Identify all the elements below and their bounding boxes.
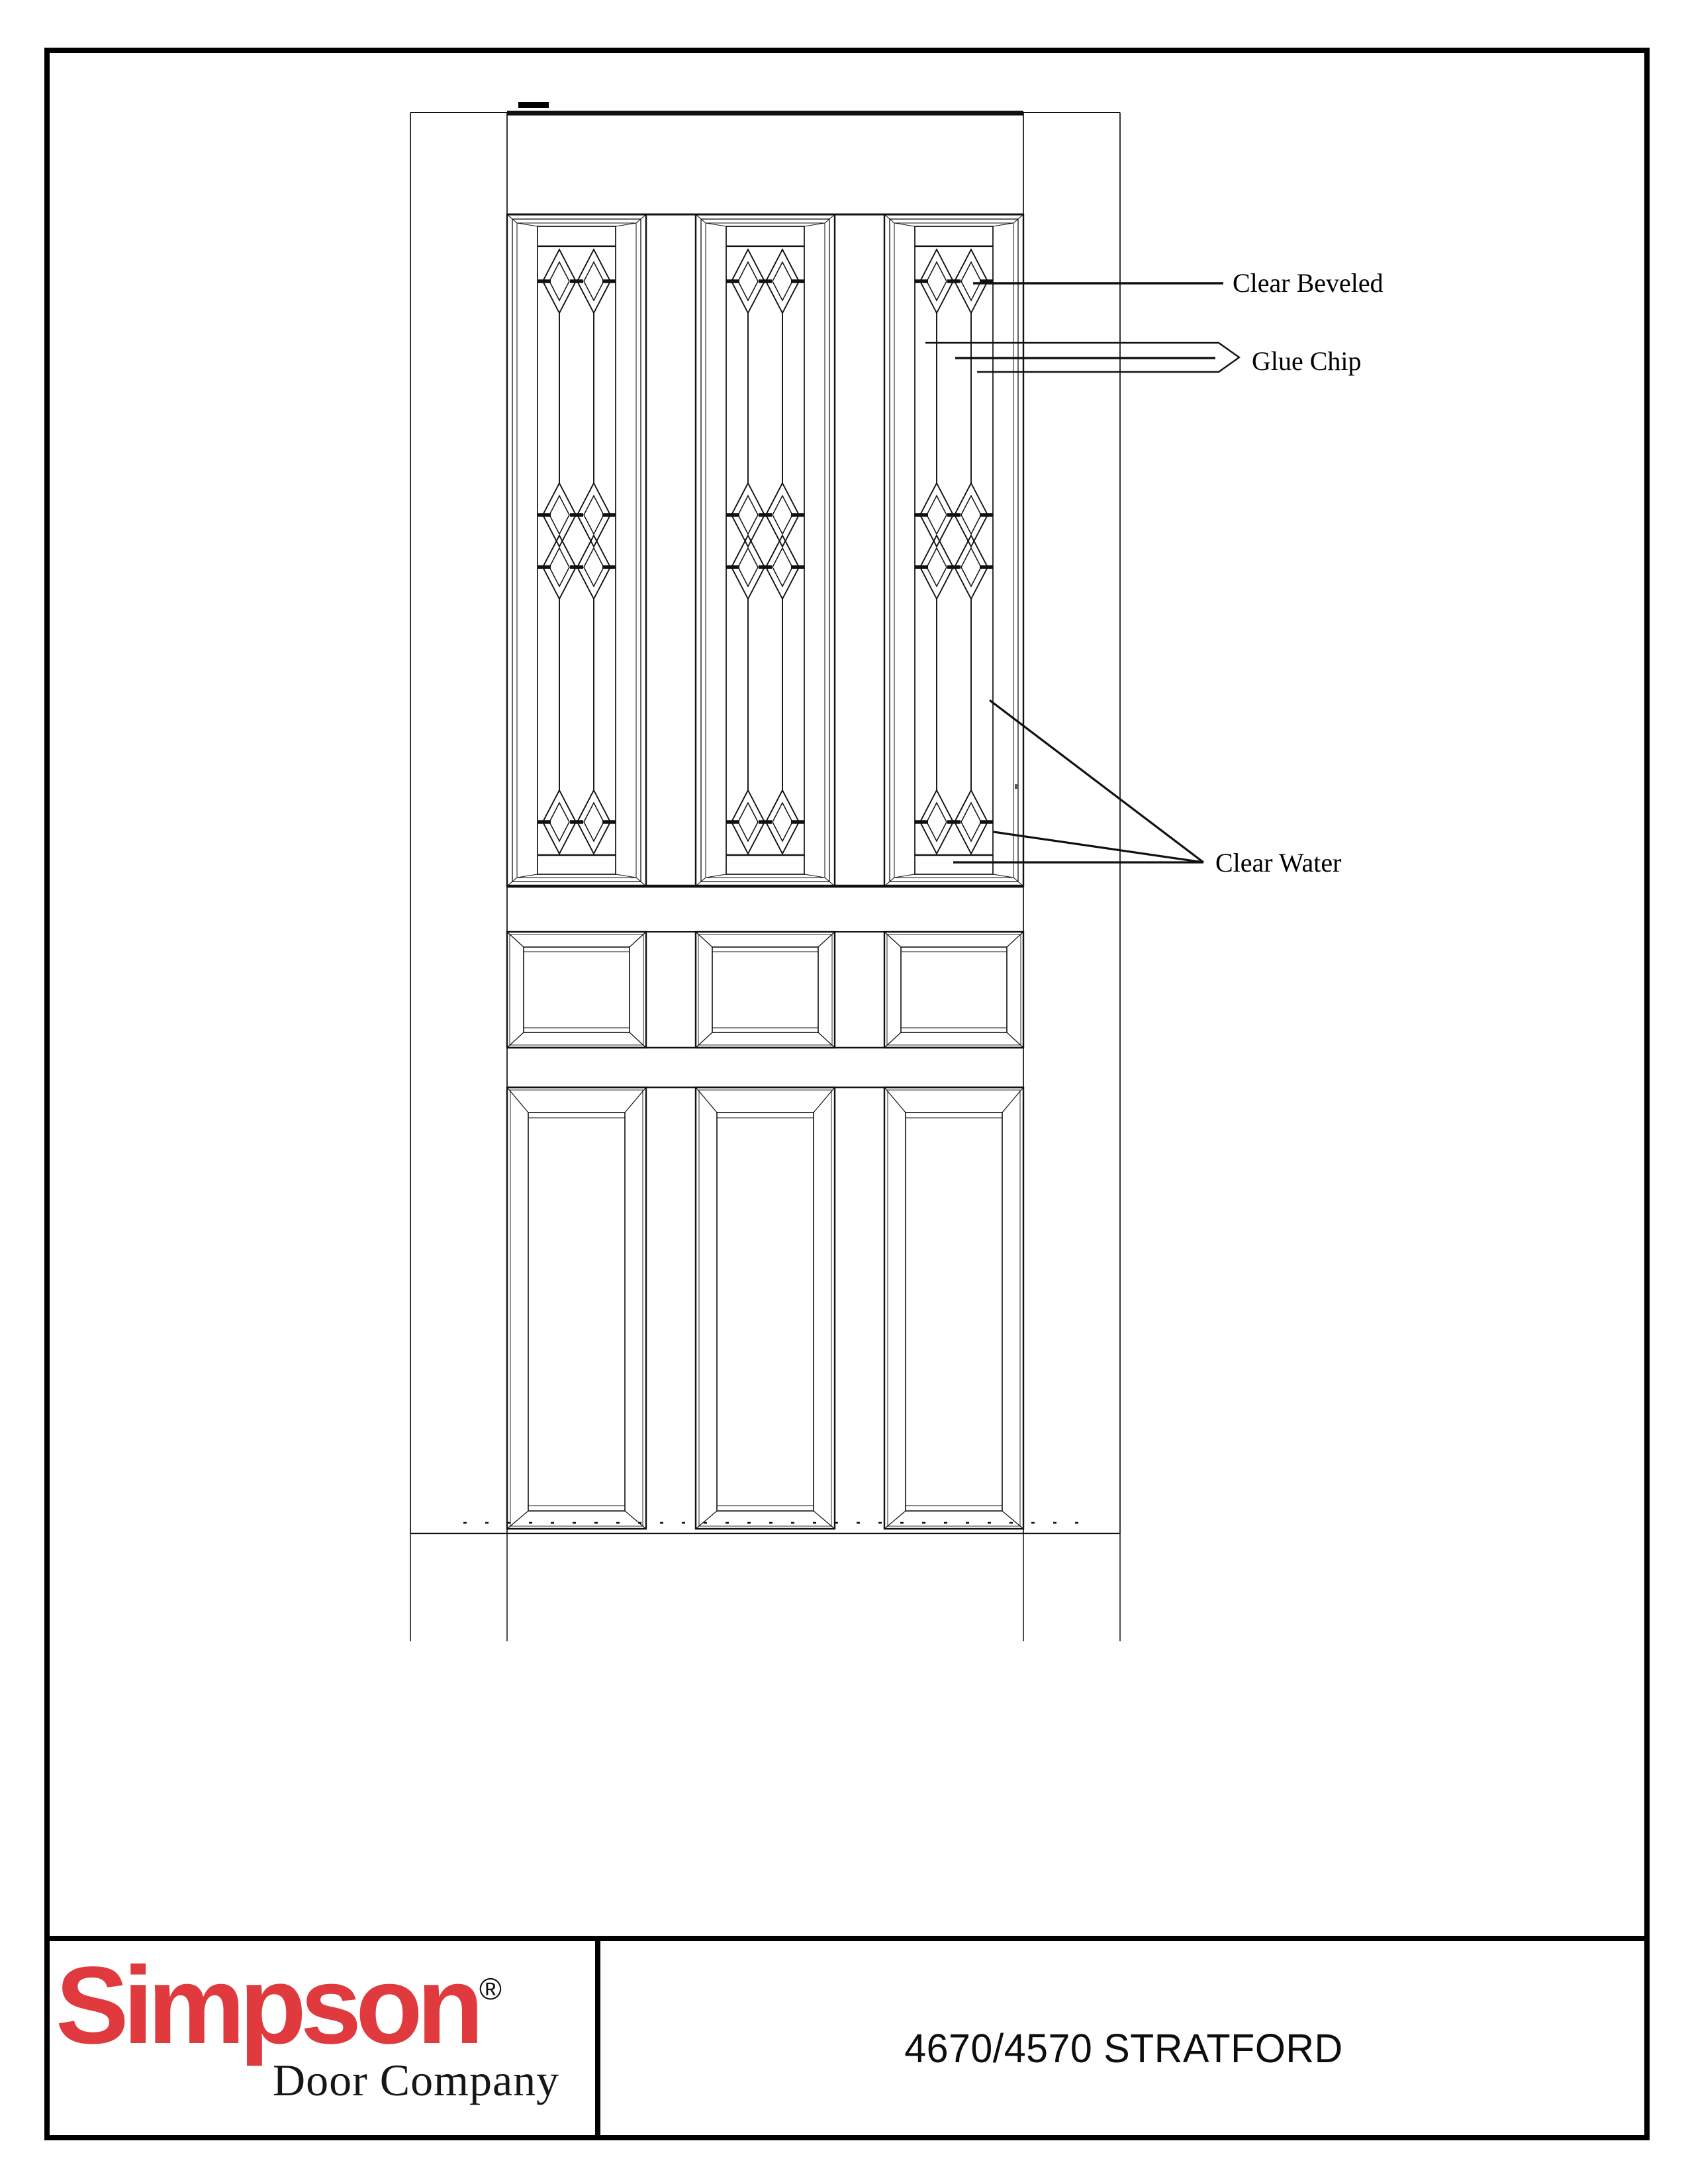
small-panel-center: [696, 932, 835, 1048]
annotation-clear-beveled: Clear Beveled: [973, 268, 1383, 298]
door-model-title: 4670/4570 STRATFORD: [614, 2025, 1634, 2071]
door-elevation-drawing: Clear Beveled Glue Chip Clear Water: [0, 0, 1688, 2184]
label-clear-water: Clear Water: [1215, 848, 1341, 878]
small-panel-left: [507, 932, 646, 1048]
bottom-panel-center: [696, 1087, 835, 1529]
scan-artifact-dot: [1015, 784, 1017, 789]
spec-sheet-page: Clear Beveled Glue Chip Clear Water Simp…: [0, 0, 1688, 2184]
scan-artifact-dash: [518, 102, 549, 108]
small-panels: [507, 932, 1023, 1048]
glass-panel-right: [884, 214, 1023, 886]
label-glue-chip: Glue Chip: [1252, 346, 1362, 376]
bottom-panel-right: [884, 1087, 1023, 1529]
registered-trademark-symbol: ®: [479, 1971, 502, 2007]
glass-panel-center: [696, 214, 835, 886]
simpson-logo: Simpson: [56, 1951, 478, 2061]
bottom-panel-left: [507, 1087, 646, 1529]
annotation-clear-water: Clear Water: [953, 700, 1341, 878]
title-block-divider: [595, 1936, 600, 2140]
glass-panels: [507, 214, 1023, 886]
small-panel-right: [884, 932, 1023, 1048]
logo-subtitle: Door Company: [273, 2054, 559, 2107]
label-clear-beveled: Clear Beveled: [1233, 268, 1383, 298]
glass-panel-left: [507, 214, 646, 886]
leader-lines: [953, 700, 1203, 862]
bottom-panels: [507, 1087, 1023, 1529]
title-block-top-rule: [44, 1936, 1650, 1941]
annotation-glue-chip: Glue Chip: [925, 343, 1362, 376]
